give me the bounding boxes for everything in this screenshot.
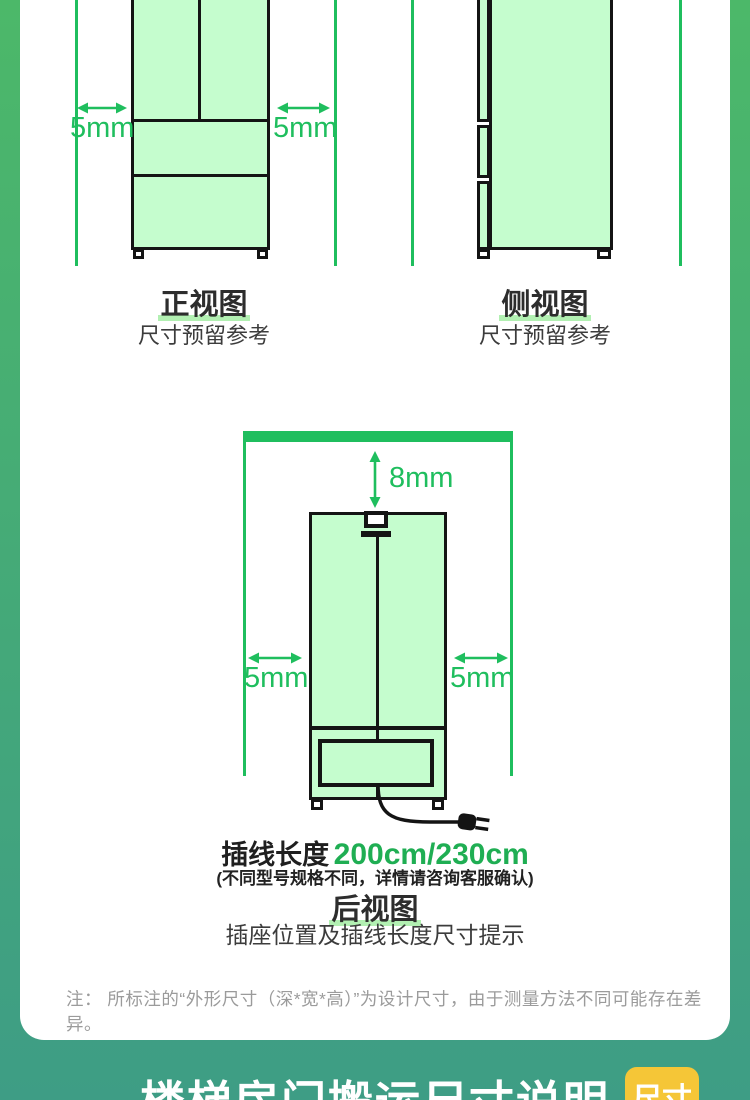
socket-bar bbox=[361, 531, 391, 537]
fridge-side-foot-right bbox=[597, 249, 611, 259]
back-right-wall-line bbox=[510, 442, 513, 776]
back-left-wall-line bbox=[243, 442, 246, 776]
fridge-front-foot-right bbox=[257, 249, 268, 259]
page: 5mm 5mm 正视图 尺寸预留参考 侧视图 尺寸预留参考 8mm bbox=[0, 0, 750, 1100]
fridge-front-door-right bbox=[201, 0, 267, 119]
fridge-side-door-upper bbox=[477, 0, 490, 122]
fridge-back-bottom-divider bbox=[312, 726, 444, 730]
side-left-wall-line bbox=[411, 0, 414, 266]
back-view-subtitle: 插座位置及插线长度尺寸提示 bbox=[200, 916, 550, 950]
fridge-back-compressor-panel bbox=[318, 739, 434, 787]
fridge-front-door-left bbox=[134, 0, 198, 119]
power-cord-plug-icon bbox=[372, 784, 504, 839]
fridge-front-drawer-upper bbox=[134, 122, 267, 174]
top-clearance-arrow-icon bbox=[367, 451, 383, 508]
side-view-subtitle: 尺寸预留参考 bbox=[445, 318, 645, 350]
fridge-side-door-lower bbox=[477, 181, 490, 250]
front-left-clearance-label: 5mm bbox=[70, 112, 130, 145]
front-view-title: 正视图 bbox=[129, 281, 279, 323]
front-right-clearance-label: 5mm bbox=[273, 112, 333, 145]
dimension-disclaimer-note: 注： 所标注的“外形尺寸（深*宽*高）”为设计尺寸，由于测量方法不同可能存在差异… bbox=[66, 986, 706, 1036]
size-badge: 尺寸 bbox=[625, 1067, 699, 1100]
fridge-side-door-middle bbox=[477, 125, 490, 178]
front-view-subtitle: 尺寸预留参考 bbox=[104, 318, 304, 350]
fridge-back-foot-left bbox=[311, 799, 323, 810]
back-top-clearance-label: 8mm bbox=[389, 462, 459, 495]
fridge-front-drawer-lower bbox=[134, 177, 267, 247]
back-left-clearance-label: 5mm bbox=[244, 662, 306, 695]
back-top-wall-bar bbox=[243, 431, 513, 442]
side-view-title: 侧视图 bbox=[470, 281, 620, 323]
back-right-clearance-label: 5mm bbox=[450, 662, 512, 695]
fridge-side-body bbox=[489, 0, 613, 250]
fridge-side-foot-left bbox=[477, 249, 490, 259]
side-right-wall-line bbox=[679, 0, 682, 266]
socket-icon bbox=[364, 511, 388, 528]
fridge-front-outline bbox=[131, 0, 270, 250]
fridge-front-foot-left bbox=[133, 249, 144, 259]
